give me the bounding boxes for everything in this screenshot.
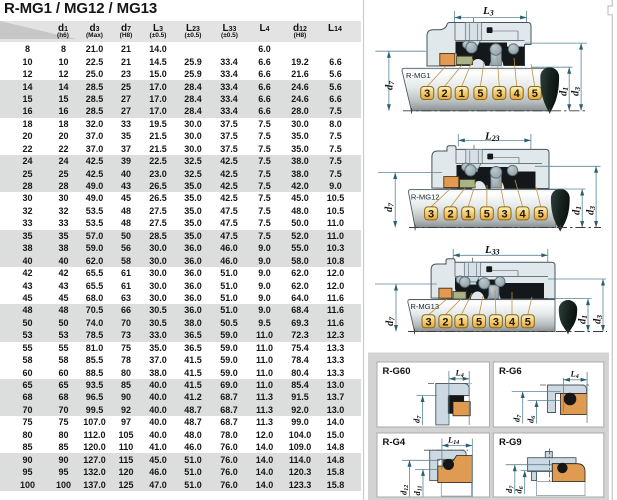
svg-text:3: 3 [496, 88, 502, 100]
svg-text:R-G9: R-G9 [499, 437, 522, 448]
svg-text:3: 3 [493, 316, 499, 328]
svg-text:3: 3 [428, 208, 434, 220]
svg-text:5: 5 [532, 88, 538, 100]
svg-text:5: 5 [484, 208, 490, 220]
svg-text:d7: d7 [384, 202, 396, 212]
svg-text:1: 1 [459, 88, 465, 100]
svg-text:4: 4 [520, 208, 527, 220]
svg-text:3: 3 [501, 208, 507, 220]
svg-text:R-G6: R-G6 [499, 366, 522, 377]
svg-text:L33: L33 [484, 244, 500, 257]
svg-text:1: 1 [465, 208, 471, 220]
svg-text:3: 3 [424, 88, 430, 100]
svg-text:d7: d7 [385, 80, 397, 90]
svg-text:5: 5 [477, 88, 483, 100]
svg-text:R-MG12: R-MG12 [411, 193, 440, 202]
svg-text:d3: d3 [592, 315, 604, 324]
svg-text:5: 5 [525, 316, 531, 328]
svg-text:5: 5 [538, 208, 544, 220]
svg-text:R-G4: R-G4 [383, 437, 406, 448]
svg-text:L3: L3 [482, 5, 494, 18]
svg-text:L23: L23 [484, 130, 500, 143]
svg-text:2: 2 [442, 316, 448, 328]
svg-text:4: 4 [509, 316, 516, 328]
svg-text:d3: d3 [571, 87, 583, 96]
svg-text:d7: d7 [385, 316, 397, 326]
svg-text:2: 2 [448, 208, 454, 220]
svg-text:5: 5 [476, 316, 482, 328]
svg-text:d1: d1 [559, 87, 571, 96]
svg-text:2: 2 [442, 88, 448, 100]
svg-text:R-MG1: R-MG1 [406, 71, 430, 80]
svg-text:d1: d1 [572, 206, 584, 215]
svg-text:R-G60: R-G60 [383, 366, 411, 377]
svg-text:4: 4 [514, 88, 521, 100]
svg-text:d3: d3 [586, 206, 598, 215]
svg-text:1: 1 [458, 316, 464, 328]
svg-text:3: 3 [425, 316, 431, 328]
svg-text:d1: d1 [577, 315, 589, 324]
